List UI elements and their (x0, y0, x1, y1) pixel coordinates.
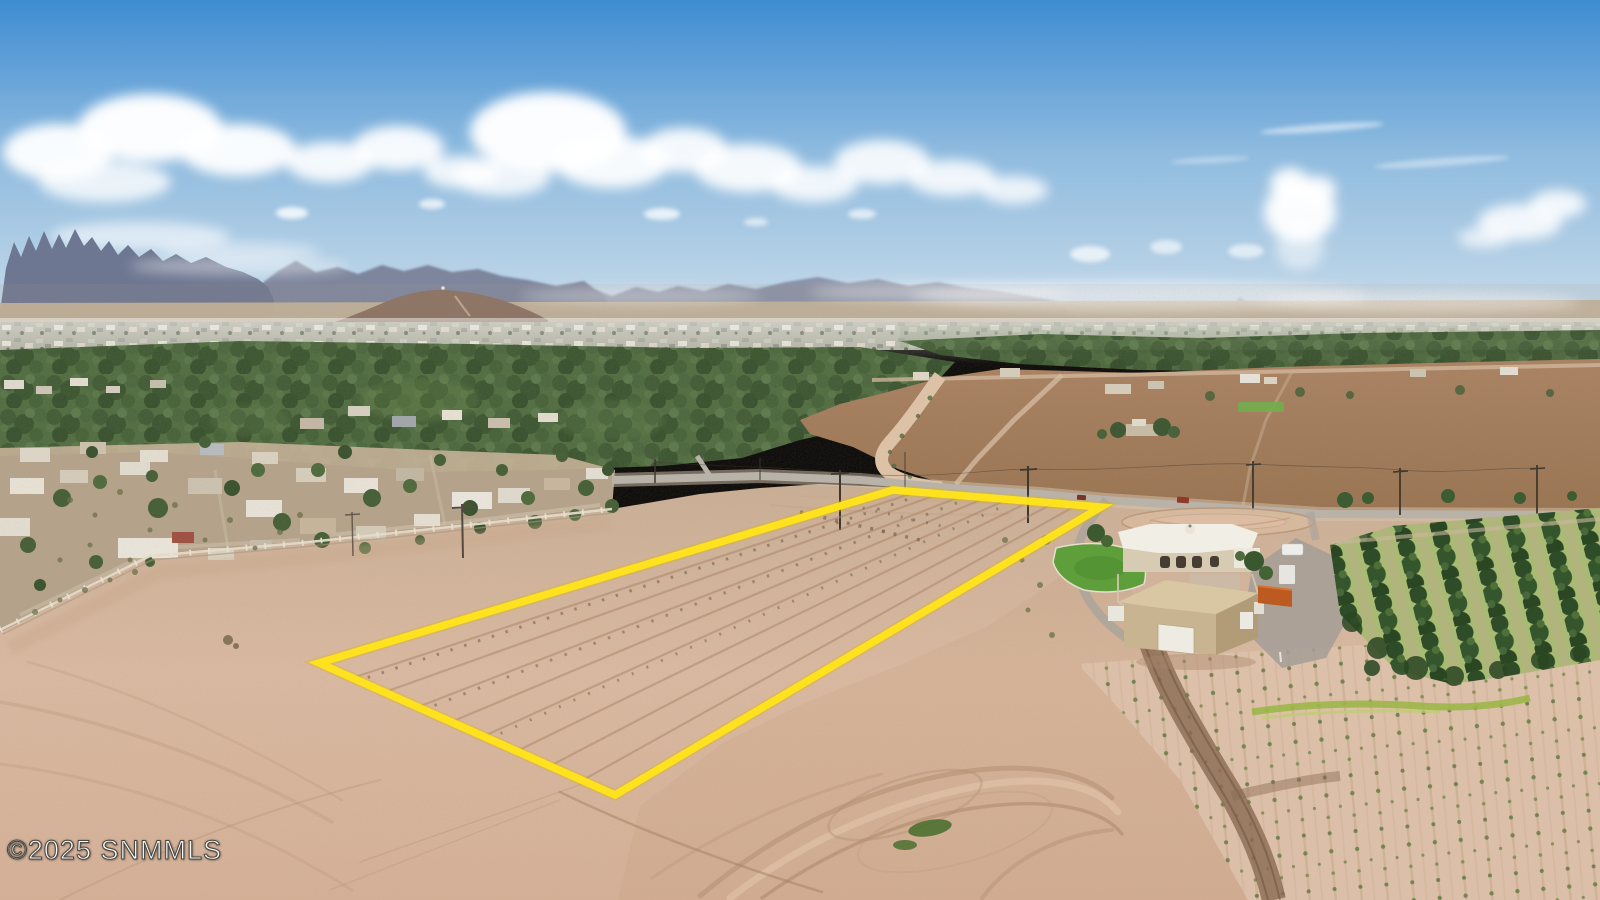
white-unit (1254, 602, 1264, 614)
red-pickup-truck (1177, 497, 1189, 504)
cupola-tip (1189, 525, 1192, 528)
white-post (1280, 652, 1281, 662)
photo-canvas (0, 0, 1600, 900)
box-trailer (1279, 565, 1295, 584)
hill-antenna (441, 286, 445, 290)
white-shed (1108, 606, 1124, 621)
barn-shadow (1136, 654, 1256, 670)
dark-red-car (1077, 495, 1086, 501)
aerial-photo: ©2025 SNMMLS (0, 0, 1600, 900)
barn-door (1158, 624, 1194, 654)
watermark-text: ©2025 SNMMLS (7, 835, 222, 866)
white-trailer-box (1240, 612, 1253, 629)
rv-trailer (1282, 544, 1303, 555)
